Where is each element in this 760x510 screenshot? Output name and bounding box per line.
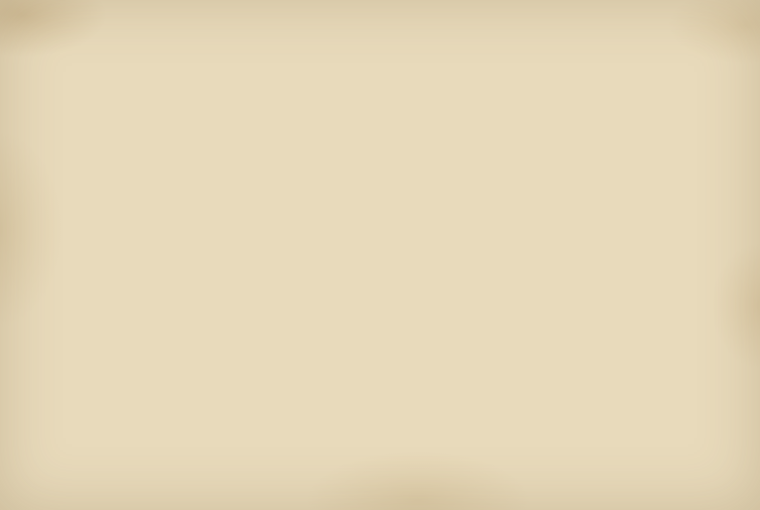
- map-canvas: [0, 0, 760, 510]
- historical-town-map: [0, 0, 760, 510]
